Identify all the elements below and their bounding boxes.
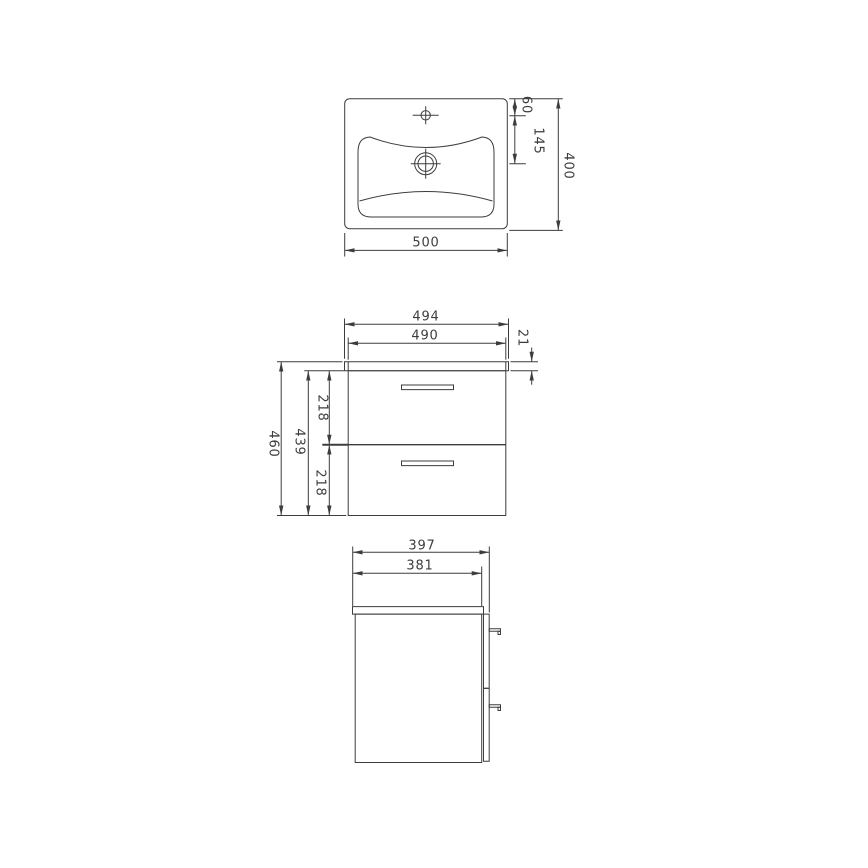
cabinet-side-view [353,547,501,763]
dim-label-tap-to-drain: 145 [532,127,545,154]
technical-drawing [0,0,868,868]
dim-label-upper-drawer-height: 218 [316,394,329,421]
drawing-sheet: 500 60 145 400 494 490 21 460 439 218 21… [0,0,868,868]
tap-hole [413,106,439,124]
top-panel [345,362,509,371]
dim-label-basin-width: 500 [412,237,439,250]
dim-label-lower-drawer-height: 218 [314,469,327,496]
basin-floor-contour [360,192,493,202]
cabinet-body [348,371,506,516]
basin-top-view [345,99,563,257]
dim-label-basin-depth: 400 [562,152,575,179]
dim-label-top-panel-thickness: 21 [516,328,529,346]
dim-label-tap-offset: 60 [520,96,533,114]
dim-label-body-height: 439 [293,428,306,455]
dim-label-body-depth: 381 [406,560,433,573]
lower-drawer-handle [402,461,454,466]
drain-hole [411,149,441,179]
upper-drawer-handle [402,385,454,390]
dim-label-total-height: 460 [267,430,280,457]
dim-label-top-panel-width: 494 [412,310,439,323]
dim-label-total-depth: 397 [408,539,435,552]
dim-label-body-width: 490 [411,329,438,342]
cabinet-side-dimension-lines [353,547,490,613]
basin-dimension-lines [345,99,563,257]
top-panel-end-ticks [348,362,506,371]
side-cabinet-body [355,614,482,762]
side-top-panel [353,607,484,615]
side-upper-handle [489,629,500,635]
side-lower-handle [489,705,500,711]
